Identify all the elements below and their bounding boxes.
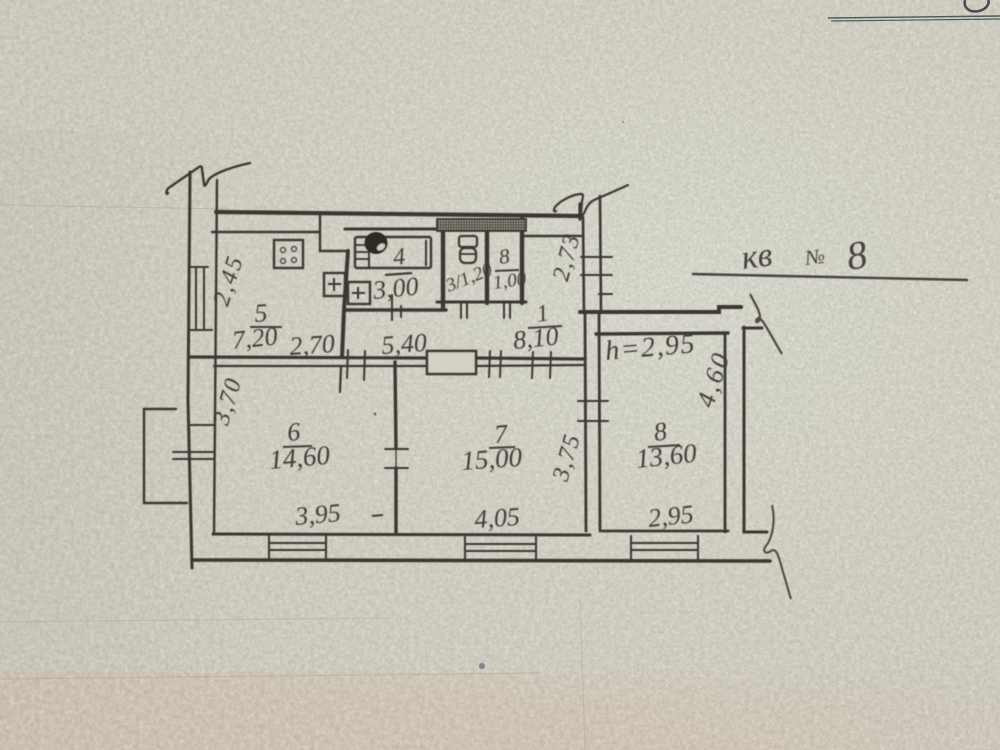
svg-text:13,60: 13,60 — [634, 438, 698, 474]
svg-text:3,95: 3,95 — [293, 498, 342, 531]
svg-text:4,05: 4,05 — [473, 502, 520, 534]
svg-text:8,10: 8,10 — [512, 321, 560, 355]
svg-text:7,20: 7,20 — [231, 321, 279, 355]
svg-text:5,40: 5,40 — [380, 328, 427, 360]
svg-text:№: № — [803, 244, 827, 270]
svg-text:2,95: 2,95 — [647, 499, 695, 533]
svg-text:15,00: 15,00 — [460, 442, 523, 476]
svg-text:3,00: 3,00 — [371, 271, 420, 305]
svg-text:2,70: 2,70 — [288, 329, 335, 361]
svg-text:14,60: 14,60 — [268, 440, 332, 475]
svg-text:кв: кв — [739, 236, 774, 276]
